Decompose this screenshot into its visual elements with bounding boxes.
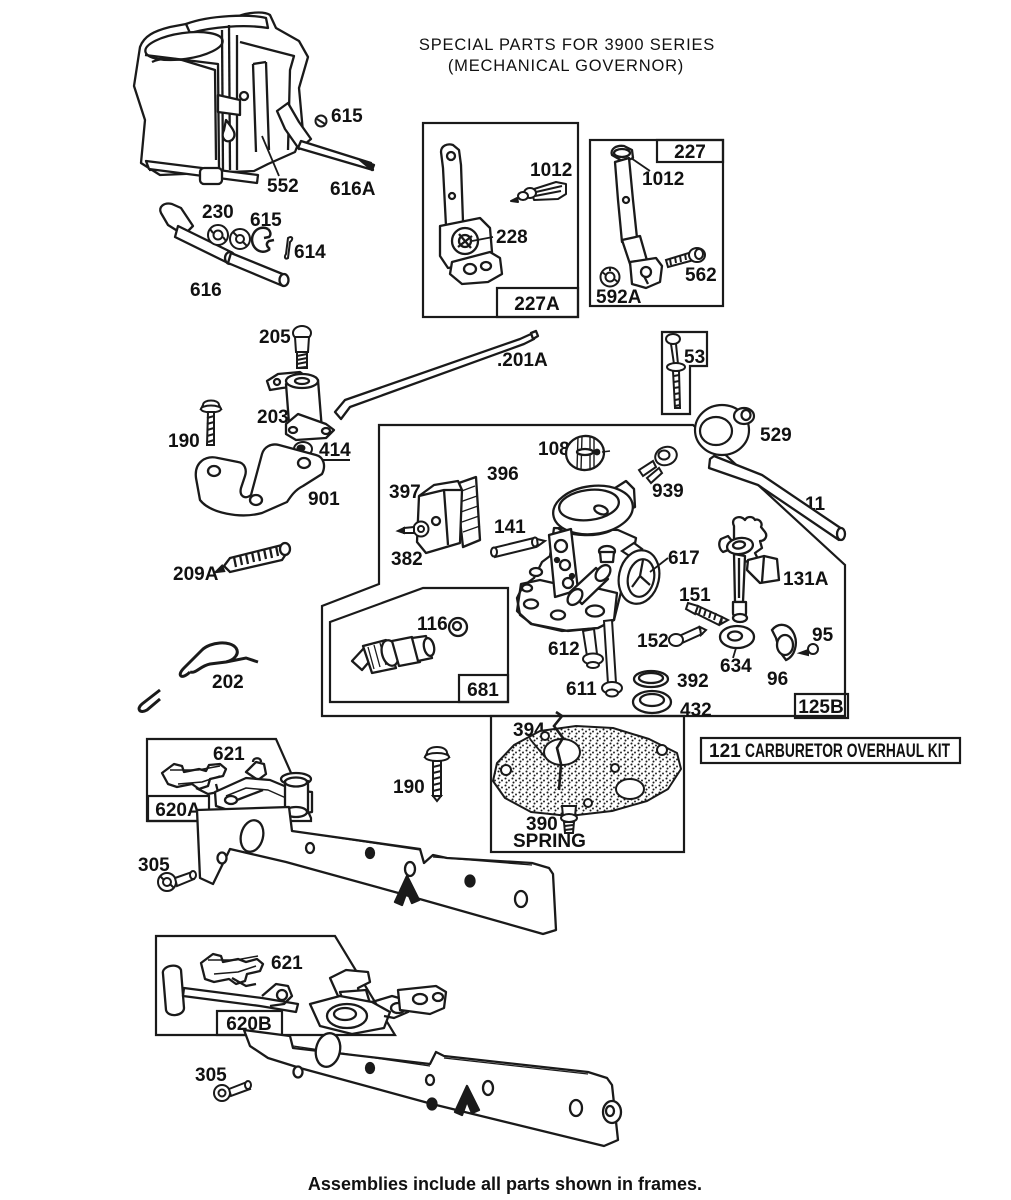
svg-text:131A: 131A (783, 569, 829, 590)
svg-text:95: 95 (812, 625, 834, 646)
svg-text:616: 616 (190, 280, 222, 301)
svg-text:230: 230 (202, 202, 234, 223)
svg-text:621: 621 (271, 953, 303, 974)
svg-text:1012: 1012 (642, 169, 684, 190)
svg-text:397: 397 (389, 482, 421, 503)
svg-text:392: 392 (677, 671, 709, 692)
svg-text:611: 611 (566, 679, 597, 700)
svg-text:116: 116 (417, 614, 448, 635)
svg-text:634: 634 (720, 656, 752, 677)
svg-text:227: 227 (674, 142, 706, 163)
svg-text:125B: 125B (798, 697, 843, 718)
svg-text:.201A: .201A (497, 350, 548, 371)
svg-text:190: 190 (168, 431, 200, 452)
svg-text:108: 108 (538, 439, 570, 460)
svg-text:151: 151 (679, 585, 711, 606)
svg-text:681: 681 (467, 680, 499, 701)
svg-text:209A: 209A (173, 564, 219, 585)
svg-text:414: 414 (319, 440, 351, 461)
svg-text:617: 617 (668, 548, 700, 569)
svg-text:203: 203 (257, 407, 289, 428)
svg-text:562: 562 (685, 265, 717, 286)
svg-text:205: 205 (259, 327, 291, 348)
svg-text:(MECHANICAL GOVERNOR): (MECHANICAL GOVERNOR) (448, 57, 684, 75)
svg-text:202: 202 (212, 672, 244, 693)
svg-text:228: 228 (496, 227, 528, 248)
svg-text:121: 121 (709, 741, 741, 762)
svg-text:SPRING: SPRING (513, 831, 586, 852)
svg-text:614: 614 (294, 242, 326, 263)
svg-text:432: 432 (680, 700, 712, 721)
svg-text:615: 615 (331, 106, 363, 127)
svg-text:152: 152 (637, 631, 669, 652)
svg-text:621: 621 (213, 744, 245, 765)
svg-text:616A: 616A (330, 179, 376, 200)
svg-text:552: 552 (267, 176, 299, 197)
svg-text:305: 305 (195, 1065, 227, 1086)
svg-text:96: 96 (767, 669, 788, 690)
svg-text:141: 141 (494, 517, 526, 538)
svg-text:Assemblies include all parts s: Assemblies include all parts shown in fr… (308, 1174, 702, 1194)
svg-text:939: 939 (652, 481, 684, 502)
svg-text:53: 53 (684, 347, 705, 368)
svg-text:SPECIAL PARTS FOR 3900 SERIES: SPECIAL PARTS FOR 3900 SERIES (419, 36, 715, 54)
svg-text:382: 382 (391, 549, 423, 570)
svg-text:612: 612 (548, 639, 580, 660)
svg-text:592A: 592A (596, 287, 642, 308)
svg-text:529: 529 (760, 425, 792, 446)
svg-text:190: 190 (393, 777, 425, 798)
svg-text:620A: 620A (155, 800, 201, 821)
svg-text:901: 901 (308, 489, 340, 510)
svg-text:1012: 1012 (530, 160, 572, 181)
svg-text:CARBURETOR OVERHAUL KIT: CARBURETOR OVERHAUL KIT (745, 741, 950, 762)
svg-text:227A: 227A (514, 294, 560, 315)
svg-text:396: 396 (487, 464, 519, 485)
